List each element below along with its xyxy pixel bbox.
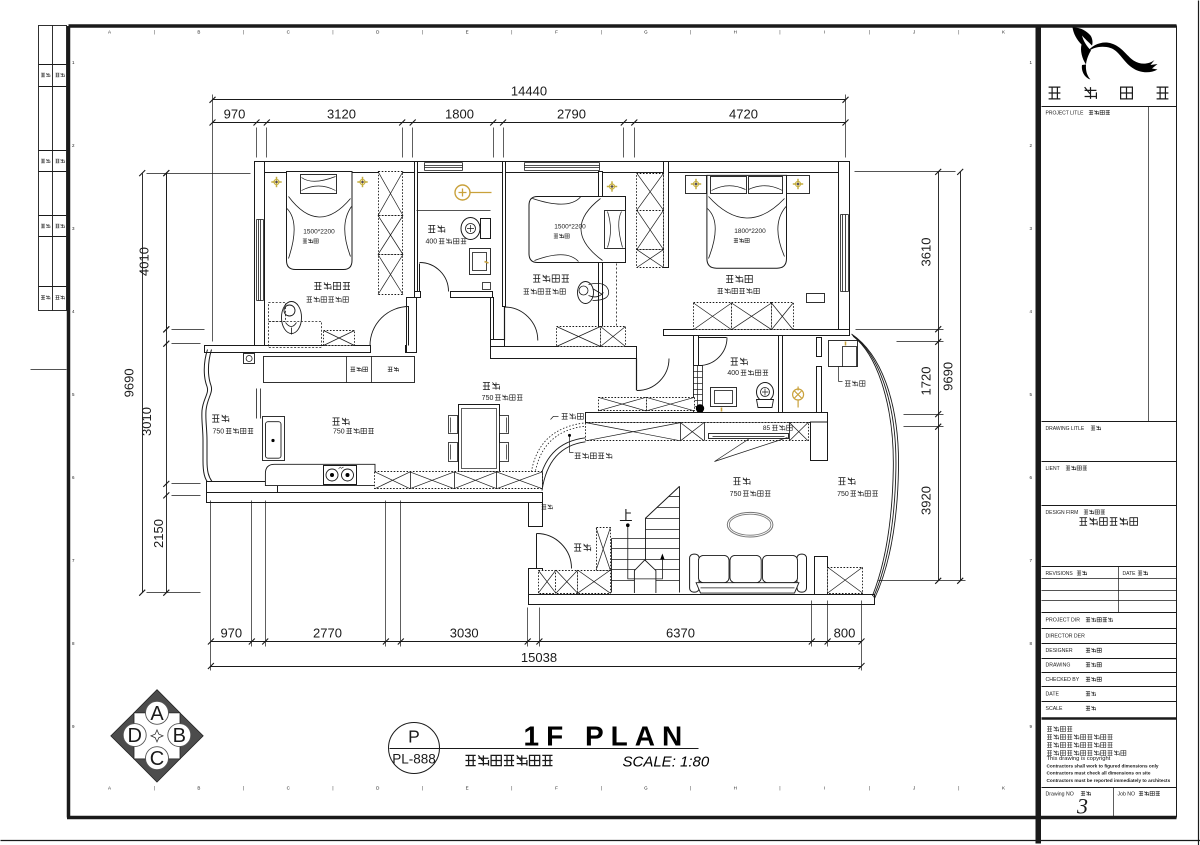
svg-text:|: | <box>422 30 423 35</box>
svg-text:DRAWING LITLE: DRAWING LITLE <box>1046 426 1085 432</box>
svg-text:|: | <box>332 30 333 35</box>
svg-text:E: E <box>466 30 469 35</box>
svg-text:750: 750 <box>212 428 224 435</box>
svg-text:|: | <box>779 30 780 35</box>
svg-text:A: A <box>108 30 111 35</box>
svg-text:1720: 1720 <box>919 367 934 396</box>
svg-text:B: B <box>197 786 200 791</box>
svg-text:3030: 3030 <box>450 626 479 641</box>
svg-text:4720: 4720 <box>729 107 758 122</box>
svg-text:J: J <box>913 786 915 791</box>
svg-text:This drawing is copyright: This drawing is copyright <box>1047 756 1111 762</box>
svg-text:|: | <box>601 30 602 35</box>
svg-text:PL-888: PL-888 <box>392 752 436 767</box>
svg-text:|: | <box>690 30 691 35</box>
svg-text:3010: 3010 <box>139 407 154 436</box>
svg-text:970: 970 <box>220 626 242 641</box>
svg-text:DESIGNER: DESIGNER <box>1046 648 1073 654</box>
svg-text:DATE: DATE <box>1046 692 1060 698</box>
svg-text:3610: 3610 <box>919 238 934 267</box>
svg-text:P: P <box>408 727 420 747</box>
svg-text:G: G <box>644 786 648 791</box>
svg-text:|: | <box>154 786 155 791</box>
svg-text:9690: 9690 <box>122 368 137 397</box>
svg-text:A: A <box>108 786 111 791</box>
svg-text:B: B <box>173 725 186 747</box>
svg-text:B: B <box>197 30 200 35</box>
svg-text:H: H <box>734 786 737 791</box>
svg-text:14440: 14440 <box>511 84 547 99</box>
svg-text:15038: 15038 <box>521 650 557 665</box>
svg-text:|: | <box>154 30 155 35</box>
svg-text:2790: 2790 <box>557 107 586 122</box>
svg-text:DATE: DATE <box>1123 571 1137 577</box>
svg-text:|: | <box>422 786 423 791</box>
svg-text:I: I <box>824 786 825 791</box>
svg-text:|: | <box>332 786 333 791</box>
svg-text:G: G <box>644 30 648 35</box>
svg-text:DESIGN FIRM: DESIGN FIRM <box>1046 510 1079 516</box>
svg-text:|: | <box>958 30 959 35</box>
svg-text:400: 400 <box>425 239 437 246</box>
svg-text:1F PLAN: 1F PLAN <box>524 721 690 752</box>
svg-text:3920: 3920 <box>919 486 934 515</box>
svg-text:Job NO: Job NO <box>1118 792 1136 798</box>
svg-text:1800*2200: 1800*2200 <box>734 228 766 235</box>
svg-text:PROJECT DIR: PROJECT DIR <box>1046 618 1081 624</box>
svg-text:REVISIONS: REVISIONS <box>1046 571 1074 577</box>
svg-text:DRAWING: DRAWING <box>1046 663 1071 669</box>
svg-text:SCALE: 1:80: SCALE: 1:80 <box>623 754 710 771</box>
svg-text:|: | <box>601 786 602 791</box>
svg-text:CHECKED BY: CHECKED BY <box>1046 677 1080 683</box>
svg-text:C: C <box>150 748 164 770</box>
svg-text:3: 3 <box>1076 794 1088 819</box>
svg-text:750: 750 <box>333 428 345 435</box>
svg-text:|: | <box>690 786 691 791</box>
svg-text:3120: 3120 <box>327 107 356 122</box>
svg-text:|: | <box>511 786 512 791</box>
svg-text:2150: 2150 <box>151 519 166 548</box>
svg-text:|: | <box>958 786 959 791</box>
svg-text:PROJECT LITLE: PROJECT LITLE <box>1046 111 1085 117</box>
svg-text:K: K <box>1002 30 1005 35</box>
svg-text:J: J <box>913 30 915 35</box>
svg-text:750: 750 <box>837 491 849 498</box>
svg-text:Contractors shall work to figu: Contractors shall work to figured dimens… <box>1047 763 1159 768</box>
svg-text:A: A <box>150 703 164 725</box>
svg-text:1500*2200: 1500*2200 <box>554 224 586 231</box>
svg-text:1800: 1800 <box>445 107 474 122</box>
svg-text:|: | <box>243 30 244 35</box>
svg-text:400: 400 <box>727 370 739 377</box>
svg-text:Contractors must be reported i: Contractors must be reported immediately… <box>1047 778 1171 783</box>
svg-text:Drawing NO: Drawing NO <box>1046 792 1074 798</box>
svg-text:I: I <box>824 30 825 35</box>
svg-text:F: F <box>555 30 558 35</box>
svg-text:750: 750 <box>482 395 494 402</box>
svg-text:|: | <box>243 786 244 791</box>
svg-text:85: 85 <box>763 425 771 432</box>
svg-text:|: | <box>869 30 870 35</box>
svg-text:D: D <box>127 725 141 747</box>
svg-text:F: F <box>555 786 558 791</box>
svg-text:|: | <box>779 786 780 791</box>
svg-text:800: 800 <box>834 626 856 641</box>
svg-text:H: H <box>734 30 737 35</box>
svg-text:E: E <box>466 786 469 791</box>
svg-text:|: | <box>869 786 870 791</box>
svg-text:4010: 4010 <box>136 247 151 276</box>
svg-text:SCALE: SCALE <box>1046 706 1064 712</box>
svg-text:750: 750 <box>730 491 742 498</box>
svg-text:DIRECTOR DER: DIRECTOR DER <box>1046 633 1086 639</box>
svg-text:K: K <box>1002 786 1005 791</box>
svg-text:|: | <box>511 30 512 35</box>
svg-text:2770: 2770 <box>313 626 342 641</box>
svg-text:LIENT: LIENT <box>1046 466 1060 472</box>
svg-text:1500*2200: 1500*2200 <box>303 229 335 236</box>
svg-text:9690: 9690 <box>941 362 956 391</box>
svg-text:6370: 6370 <box>666 626 695 641</box>
svg-text:Contractors must check all dim: Contractors must check all dimensions on… <box>1047 771 1151 776</box>
svg-text:970: 970 <box>224 107 246 122</box>
